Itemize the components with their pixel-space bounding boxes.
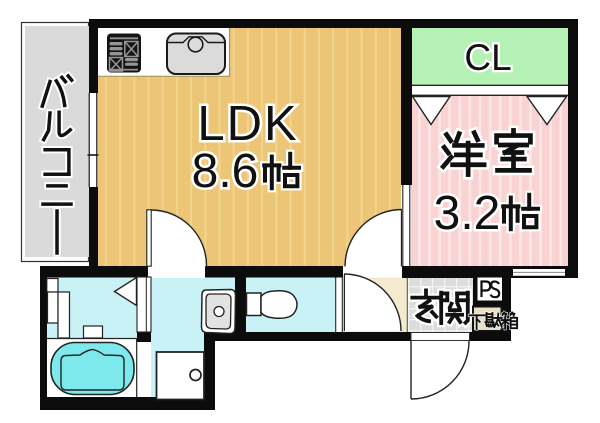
svg-text:LDK: LDK: [197, 97, 298, 151]
svg-text:8.6: 8.6: [192, 145, 259, 198]
svg-text:3.2: 3.2: [434, 187, 501, 240]
svg-text:CL: CL: [464, 37, 511, 78]
